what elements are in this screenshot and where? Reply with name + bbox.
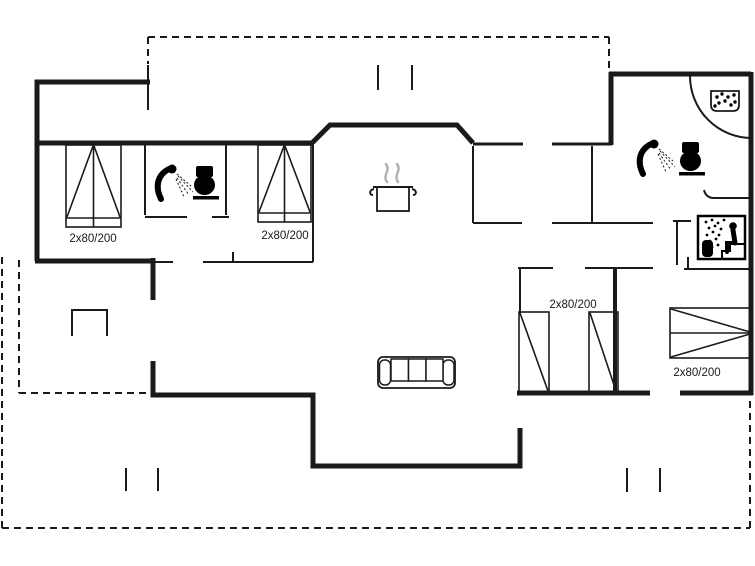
bed-size-label: 2x80/200 [69, 233, 116, 245]
sofa-icon [378, 357, 455, 388]
cooking-pot-icon [370, 164, 416, 211]
floor-plan-drawing: 2x80/200 2x80/200 2x80/200 2x80/200 [0, 0, 755, 566]
bed-single-left-bottom-middle [519, 312, 549, 392]
sauna-icon [698, 216, 745, 259]
bed-size-label: 2x80/200 [549, 299, 596, 311]
bed-double-bottom-right [670, 308, 751, 358]
grill-icon [72, 310, 107, 336]
bed-size-label: 2x80/200 [673, 367, 720, 379]
toilet-icon [193, 166, 219, 200]
interior-walls [145, 65, 751, 313]
floor-plan: 2x80/200 2x80/200 2x80/200 2x80/200 [0, 0, 755, 566]
terrace-outline [2, 37, 750, 528]
shower-icon [640, 140, 675, 175]
bed-size-label: 2x80/200 [261, 230, 308, 242]
toilet-icon [679, 142, 705, 176]
terrace-ticks [126, 65, 660, 492]
shower-bench-rail [704, 190, 751, 198]
bed-double-top-middle [258, 145, 311, 222]
bed-double-top-left [66, 145, 121, 227]
washbasin-icon [711, 91, 739, 111]
shower-icon [158, 165, 193, 200]
